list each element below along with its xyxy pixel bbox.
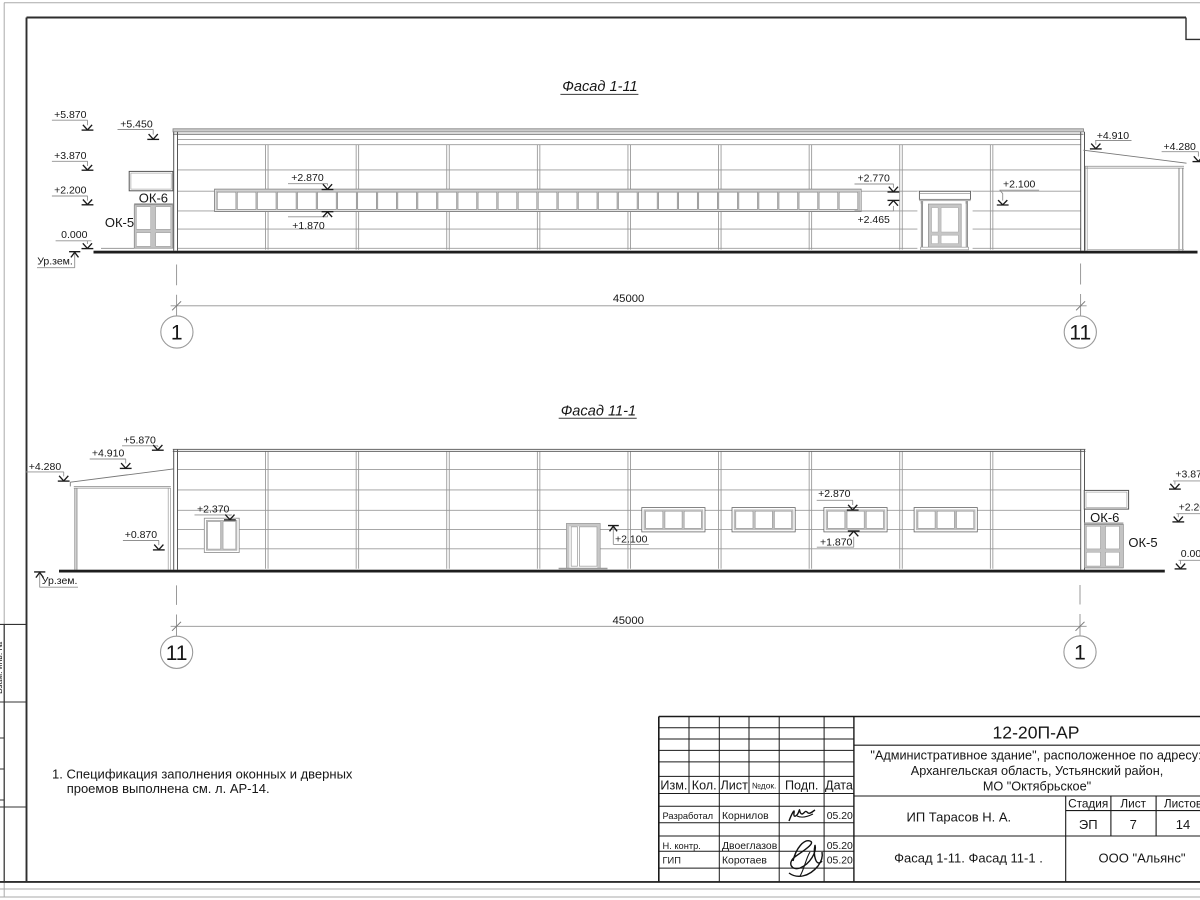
svg-text:проемов выполнена см. л. АР-14: проемов выполнена см. л. АР-14. bbox=[67, 781, 270, 796]
svg-text:+3.870: +3.870 bbox=[54, 150, 87, 162]
svg-text:1. Спецификация заполнения око: 1. Спецификация заполнения оконных и две… bbox=[52, 766, 353, 781]
svg-text:+2.200: +2.200 bbox=[1179, 502, 1200, 514]
svg-text:05.20: 05.20 bbox=[827, 811, 853, 822]
svg-text:+2.770: +2.770 bbox=[857, 173, 890, 185]
svg-text:ООО "Альянс": ООО "Альянс" bbox=[1099, 851, 1186, 866]
svg-text:ИП Тарасов Н. А.: ИП Тарасов Н. А. bbox=[906, 810, 1011, 825]
svg-text:Коротаев: Коротаев bbox=[722, 855, 767, 866]
svg-text:МО "Октябрьское": МО "Октябрьское" bbox=[983, 779, 1091, 793]
svg-text:ЭП: ЭП bbox=[1079, 817, 1098, 832]
svg-text:Взам. инв. №: Взам. инв. № bbox=[0, 641, 4, 694]
svg-text:+2.870: +2.870 bbox=[291, 172, 324, 184]
svg-text:+2.100: +2.100 bbox=[615, 534, 648, 546]
svg-text:+2.200: +2.200 bbox=[54, 185, 87, 197]
svg-text:Корнилов: Корнилов bbox=[722, 811, 769, 822]
svg-text:ОК-5: ОК-5 bbox=[1128, 535, 1157, 550]
svg-text:+5.870: +5.870 bbox=[123, 434, 156, 446]
svg-text:+3.870: +3.870 bbox=[1175, 468, 1200, 480]
svg-text:Ур.зем.: Ур.зем. bbox=[42, 575, 78, 587]
svg-text:0.000: 0.000 bbox=[61, 229, 87, 241]
svg-text:+2.370: +2.370 bbox=[197, 503, 230, 515]
svg-text:+5.450: +5.450 bbox=[120, 119, 153, 131]
svg-text:Стадия: Стадия bbox=[1068, 796, 1108, 810]
svg-text:+2.870: +2.870 bbox=[818, 488, 851, 500]
svg-text:1: 1 bbox=[171, 321, 183, 344]
svg-text:ГИП: ГИП bbox=[663, 855, 681, 865]
svg-text:+2.465: +2.465 bbox=[857, 214, 890, 226]
svg-text:Н. контр.: Н. контр. bbox=[663, 841, 701, 851]
svg-text:14: 14 bbox=[1176, 817, 1190, 832]
svg-text:0.000: 0.000 bbox=[1181, 548, 1200, 560]
svg-text:Листов: Листов bbox=[1164, 796, 1200, 810]
svg-text:+5.870: +5.870 bbox=[54, 109, 87, 121]
svg-text:11: 11 bbox=[1069, 322, 1091, 345]
svg-text:+4.910: +4.910 bbox=[92, 448, 125, 460]
svg-text:Двоеглазов: Двоеглазов bbox=[722, 841, 778, 852]
svg-text:Фасад 11-1: Фасад 11-1 bbox=[561, 403, 636, 419]
svg-text:ОК-6: ОК-6 bbox=[139, 190, 168, 205]
svg-text:Дата: Дата bbox=[825, 778, 853, 792]
svg-text:+1.870: +1.870 bbox=[292, 220, 325, 232]
svg-text:11: 11 bbox=[166, 642, 188, 665]
svg-text:"Административное здание", рас: "Административное здание", расположенное… bbox=[870, 749, 1200, 763]
svg-text:1: 1 bbox=[1074, 642, 1086, 665]
svg-text:Изм.: Изм. bbox=[660, 778, 687, 792]
svg-text:№док.: №док. bbox=[752, 781, 777, 791]
svg-text:+0.870: +0.870 bbox=[125, 529, 158, 541]
svg-text:ОК-5: ОК-5 bbox=[105, 215, 134, 230]
svg-text:Лист: Лист bbox=[721, 778, 749, 792]
svg-text:Ур.зем.: Ур.зем. bbox=[37, 255, 73, 267]
svg-text:+4.280: +4.280 bbox=[1163, 141, 1196, 153]
svg-text:7: 7 bbox=[1130, 817, 1137, 832]
svg-text:Подп.: Подп. bbox=[785, 778, 818, 792]
svg-text:Фасад 1-11. Фасад 11-1 .: Фасад 1-11. Фасад 11-1 . bbox=[894, 851, 1043, 866]
svg-text:45000: 45000 bbox=[612, 615, 643, 627]
svg-text:05.20: 05.20 bbox=[827, 855, 853, 866]
svg-text:Лист: Лист bbox=[1120, 796, 1146, 810]
svg-text:Фасад 1-11: Фасад 1-11 bbox=[562, 79, 637, 95]
svg-text:Разработал: Разработал bbox=[663, 811, 714, 821]
svg-text:05.20: 05.20 bbox=[827, 841, 853, 852]
svg-text:+4.280: +4.280 bbox=[29, 461, 62, 473]
svg-text:45000: 45000 bbox=[613, 293, 644, 305]
svg-text:Кол.: Кол. bbox=[692, 778, 717, 792]
svg-text:12-20П-АР: 12-20П-АР bbox=[993, 722, 1080, 742]
svg-text:+2.100: +2.100 bbox=[1003, 179, 1036, 191]
svg-text:Архангельская область, Устьянс: Архангельская область, Устьянский район, bbox=[911, 764, 1164, 778]
